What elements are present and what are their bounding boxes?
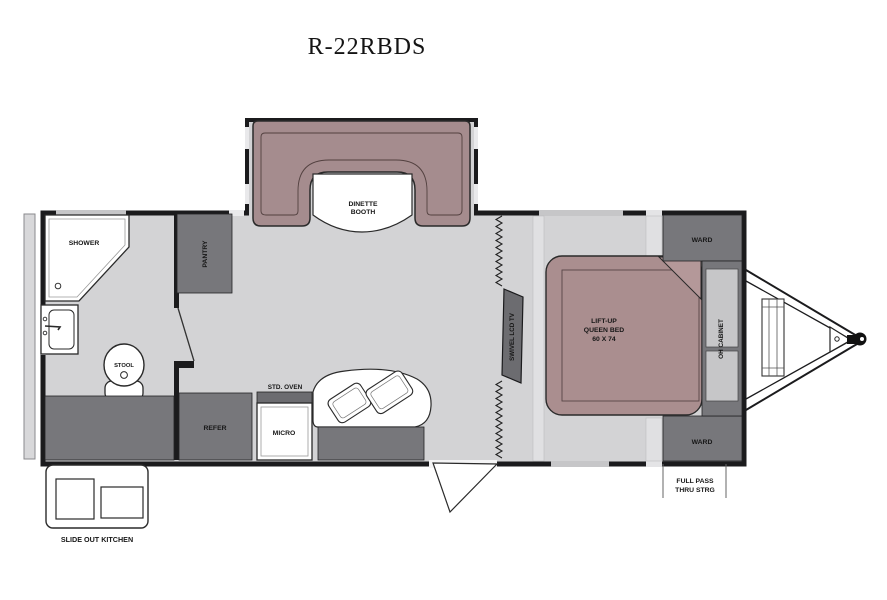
queen-bed: LIFT-UP QUEEN BED 60 X 74 bbox=[546, 256, 702, 415]
pantry-label: PANTRY bbox=[202, 240, 209, 268]
micro-label: MICRO bbox=[273, 430, 296, 437]
kitchen-counter bbox=[313, 369, 431, 460]
dinette-label-1: DINETTE bbox=[348, 201, 378, 208]
page-title: R-22RBDS bbox=[308, 34, 427, 60]
wardrobe-top: WARD bbox=[663, 215, 742, 261]
bathroom-sink bbox=[41, 305, 78, 354]
floorplan-image: R-22RBDS bbox=[0, 0, 887, 600]
floorplan-svg: R-22RBDS bbox=[0, 0, 887, 600]
pantry-cabinet: PANTRY bbox=[177, 214, 232, 293]
microwave: MICRO bbox=[257, 403, 312, 460]
rear-bumper bbox=[24, 214, 35, 459]
stool-label: STOOL bbox=[114, 363, 134, 369]
kitchen-counter-base bbox=[318, 427, 424, 460]
wardrobe-bottom: WARD bbox=[663, 416, 742, 461]
pass-thru-callout: FULL PASS THRU STRG bbox=[663, 464, 726, 498]
ward-top-label: WARD bbox=[692, 237, 713, 244]
pass-thru-label-2: THRU STRG bbox=[675, 487, 715, 494]
bed-label-3: 60 X 74 bbox=[592, 336, 616, 343]
oh-cabinet-label: OH CABINET bbox=[718, 319, 725, 359]
pass-thru-label-1: FULL PASS bbox=[676, 478, 714, 485]
shower-label: SHOWER bbox=[69, 240, 100, 247]
dinette-label-2: BOOTH bbox=[351, 209, 376, 216]
bath-counter bbox=[45, 396, 174, 460]
slide-out-kitchen: SLIDE OUT KITCHEN bbox=[46, 465, 148, 544]
refer-label: REFER bbox=[203, 425, 226, 432]
dinette-booth: DINETTE BOOTH bbox=[253, 121, 470, 232]
ward-bottom-label: WARD bbox=[692, 439, 713, 446]
refrigerator: REFER bbox=[179, 393, 252, 460]
toilet-stool: STOOL bbox=[104, 344, 144, 400]
bed-label-2: QUEEN BED bbox=[584, 327, 625, 334]
swivel-tv-label: SWIVEL LCD TV bbox=[509, 312, 516, 361]
bed-label-1: LIFT-UP bbox=[591, 318, 617, 325]
swivel-tv: SWIVEL LCD TV bbox=[502, 289, 523, 383]
std-oven-label: STD. OVEN bbox=[268, 384, 303, 391]
entry-door-swing bbox=[433, 463, 497, 512]
propane-platform bbox=[762, 299, 784, 376]
slide-out-kitchen-label: SLIDE OUT KITCHEN bbox=[61, 535, 133, 544]
oh-cabinet: OH CABINET bbox=[702, 261, 742, 416]
